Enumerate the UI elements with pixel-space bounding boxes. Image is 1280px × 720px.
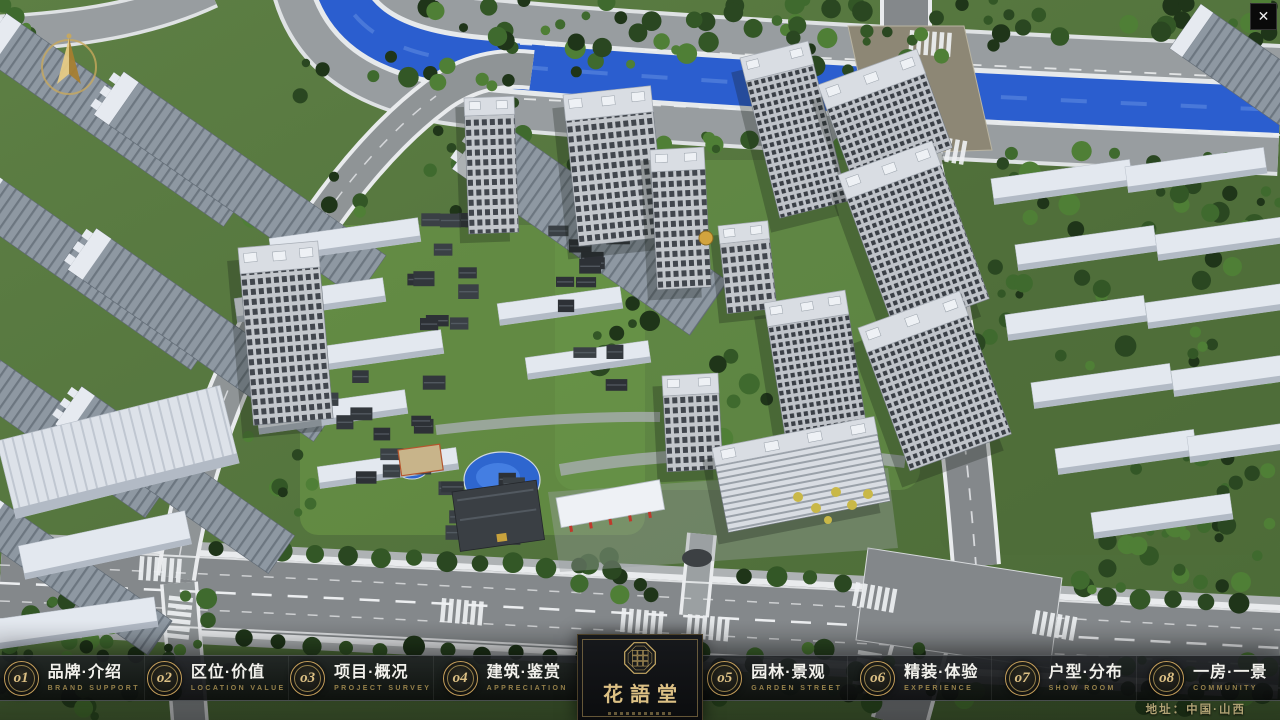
nav-item-label-zh: 项目·概况 (334, 664, 431, 682)
nav-item-label-zh: 品牌·介绍 (48, 664, 140, 682)
nav-item-label-zh: 建筑·鉴赏 (487, 664, 568, 682)
nav-item-number-badge: o5 (707, 661, 742, 696)
nav-item-number: o7 (1015, 670, 1030, 687)
nav-item-number-badge: o1 (4, 661, 39, 696)
nav-item-number-badge: o8 (1149, 661, 1184, 696)
nav-item-number-badge: o7 (1005, 661, 1040, 696)
nav-item-location-value[interactable]: o2 区位·价值LOCATION VALUE (145, 656, 290, 700)
nav-item-label-en: BRAND SUPPORT (48, 685, 140, 692)
nav-item-label-zh: 户型·分布 (1049, 664, 1123, 682)
nav-item-number: o1 (14, 670, 29, 687)
nav-item-number-badge: o4 (443, 661, 478, 696)
nav-item-architecture-appreciation[interactable]: o4 建筑·鉴赏APPRECIATION (434, 656, 578, 700)
nav-item-number: o2 (157, 670, 172, 687)
nav-item-brand-intro[interactable]: o1 品牌·介绍BRAND SUPPORT (0, 656, 145, 700)
nav-item-label-en: APPRECIATION (487, 685, 568, 692)
nav-item-label-zh: 园林·景观 (751, 664, 842, 682)
nav-item-number: o6 (870, 670, 885, 687)
nav-item-label-zh: 精装·体验 (904, 664, 978, 682)
nav-item-number: o3 (300, 670, 315, 687)
nav-item-label-en: LOCATION VALUE (191, 685, 286, 692)
nav-item-number: o5 (717, 670, 732, 687)
nav-item-label-en: GARDEN STREET (751, 685, 842, 692)
nav-item-label-en: PROJECT SURVEY (334, 685, 431, 692)
nav-item-interior-experience[interactable]: o6 精装·体验EXPERIENCE (848, 656, 993, 700)
nav-item-label-en: COMMUNITY (1193, 685, 1267, 692)
nav-item-label-en: EXPERIENCE (904, 685, 978, 692)
logo-subtitle-decoration (608, 712, 672, 715)
close-icon: ✕ (1258, 8, 1270, 25)
nav-item-project-overview[interactable]: o3 项目·概况PROJECT SURVEY (289, 656, 434, 700)
bottom-navbar: o1 品牌·介绍BRAND SUPPORT o2 区位·价值LOCATION V… (0, 655, 1280, 701)
nav-item-label-zh: 区位·价值 (191, 664, 286, 682)
nav-item-one-room-one-view[interactable]: o8 一房·一景COMMUNITY (1137, 656, 1280, 700)
nav-item-label-en: SHOW ROOM (1049, 685, 1123, 692)
nav-item-number: o4 (453, 670, 468, 687)
nav-item-number-badge: o2 (147, 661, 182, 696)
logo-title: 花語堂 (596, 678, 684, 707)
stage: ✕ o1 品牌·介绍BRAND SUPPORT o2 区位·价值LOCATION… (0, 0, 1280, 720)
nav-item-number-badge: o6 (860, 661, 895, 696)
nav-item-number: o8 (1159, 670, 1174, 687)
close-button[interactable]: ✕ (1250, 3, 1277, 30)
logo-panel[interactable]: 花語堂 (577, 634, 703, 720)
logo-seal-icon (623, 641, 657, 675)
site-aerial-view[interactable] (0, 0, 1280, 720)
nav-item-label-zh: 一房·一景 (1193, 664, 1267, 682)
nav-item-floorplan-distribution[interactable]: o7 户型·分布SHOW ROOM (992, 656, 1137, 700)
nav-item-number-badge: o3 (290, 661, 325, 696)
nav-group-left: o1 品牌·介绍BRAND SUPPORT o2 区位·价值LOCATION V… (0, 656, 577, 700)
project-address: 地址：中国·山西 (1146, 701, 1246, 717)
nav-group-right: o5 园林·景观GARDEN STREET o6 精装·体验EXPERIENCE… (703, 656, 1280, 700)
compass-north-icon (24, 22, 114, 112)
nav-item-garden-landscape[interactable]: o5 园林·景观GARDEN STREET (703, 656, 848, 700)
